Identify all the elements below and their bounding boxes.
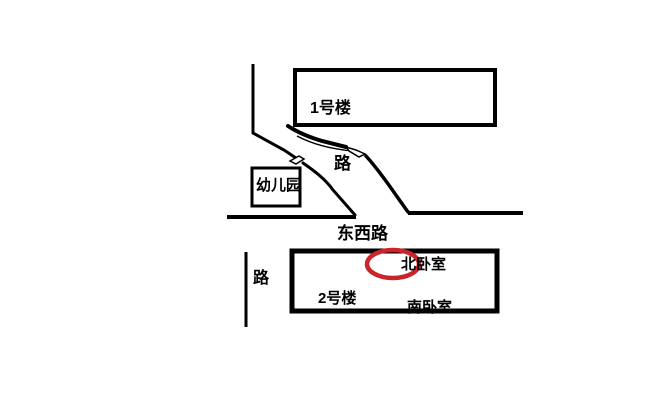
- sketch-layer: [0, 0, 667, 403]
- north-bedroom-label: 北卧室: [401, 257, 446, 272]
- upper-road-label: 路: [334, 155, 351, 172]
- road-right-edge-lower: [366, 156, 408, 212]
- road-left-edge-upper: [253, 133, 296, 158]
- east-west-road-label: 东西路: [337, 225, 388, 242]
- left-road-label: 路: [253, 271, 269, 287]
- kindergarten-label: 幼儿园: [256, 178, 301, 193]
- building-1-label: 1号楼: [310, 101, 351, 117]
- building-2-label: 2号楼: [318, 291, 356, 306]
- hand-drawn-map-canvas: 南卧室 1号楼 路 幼儿园 东西路 路 2号楼: [0, 0, 667, 403]
